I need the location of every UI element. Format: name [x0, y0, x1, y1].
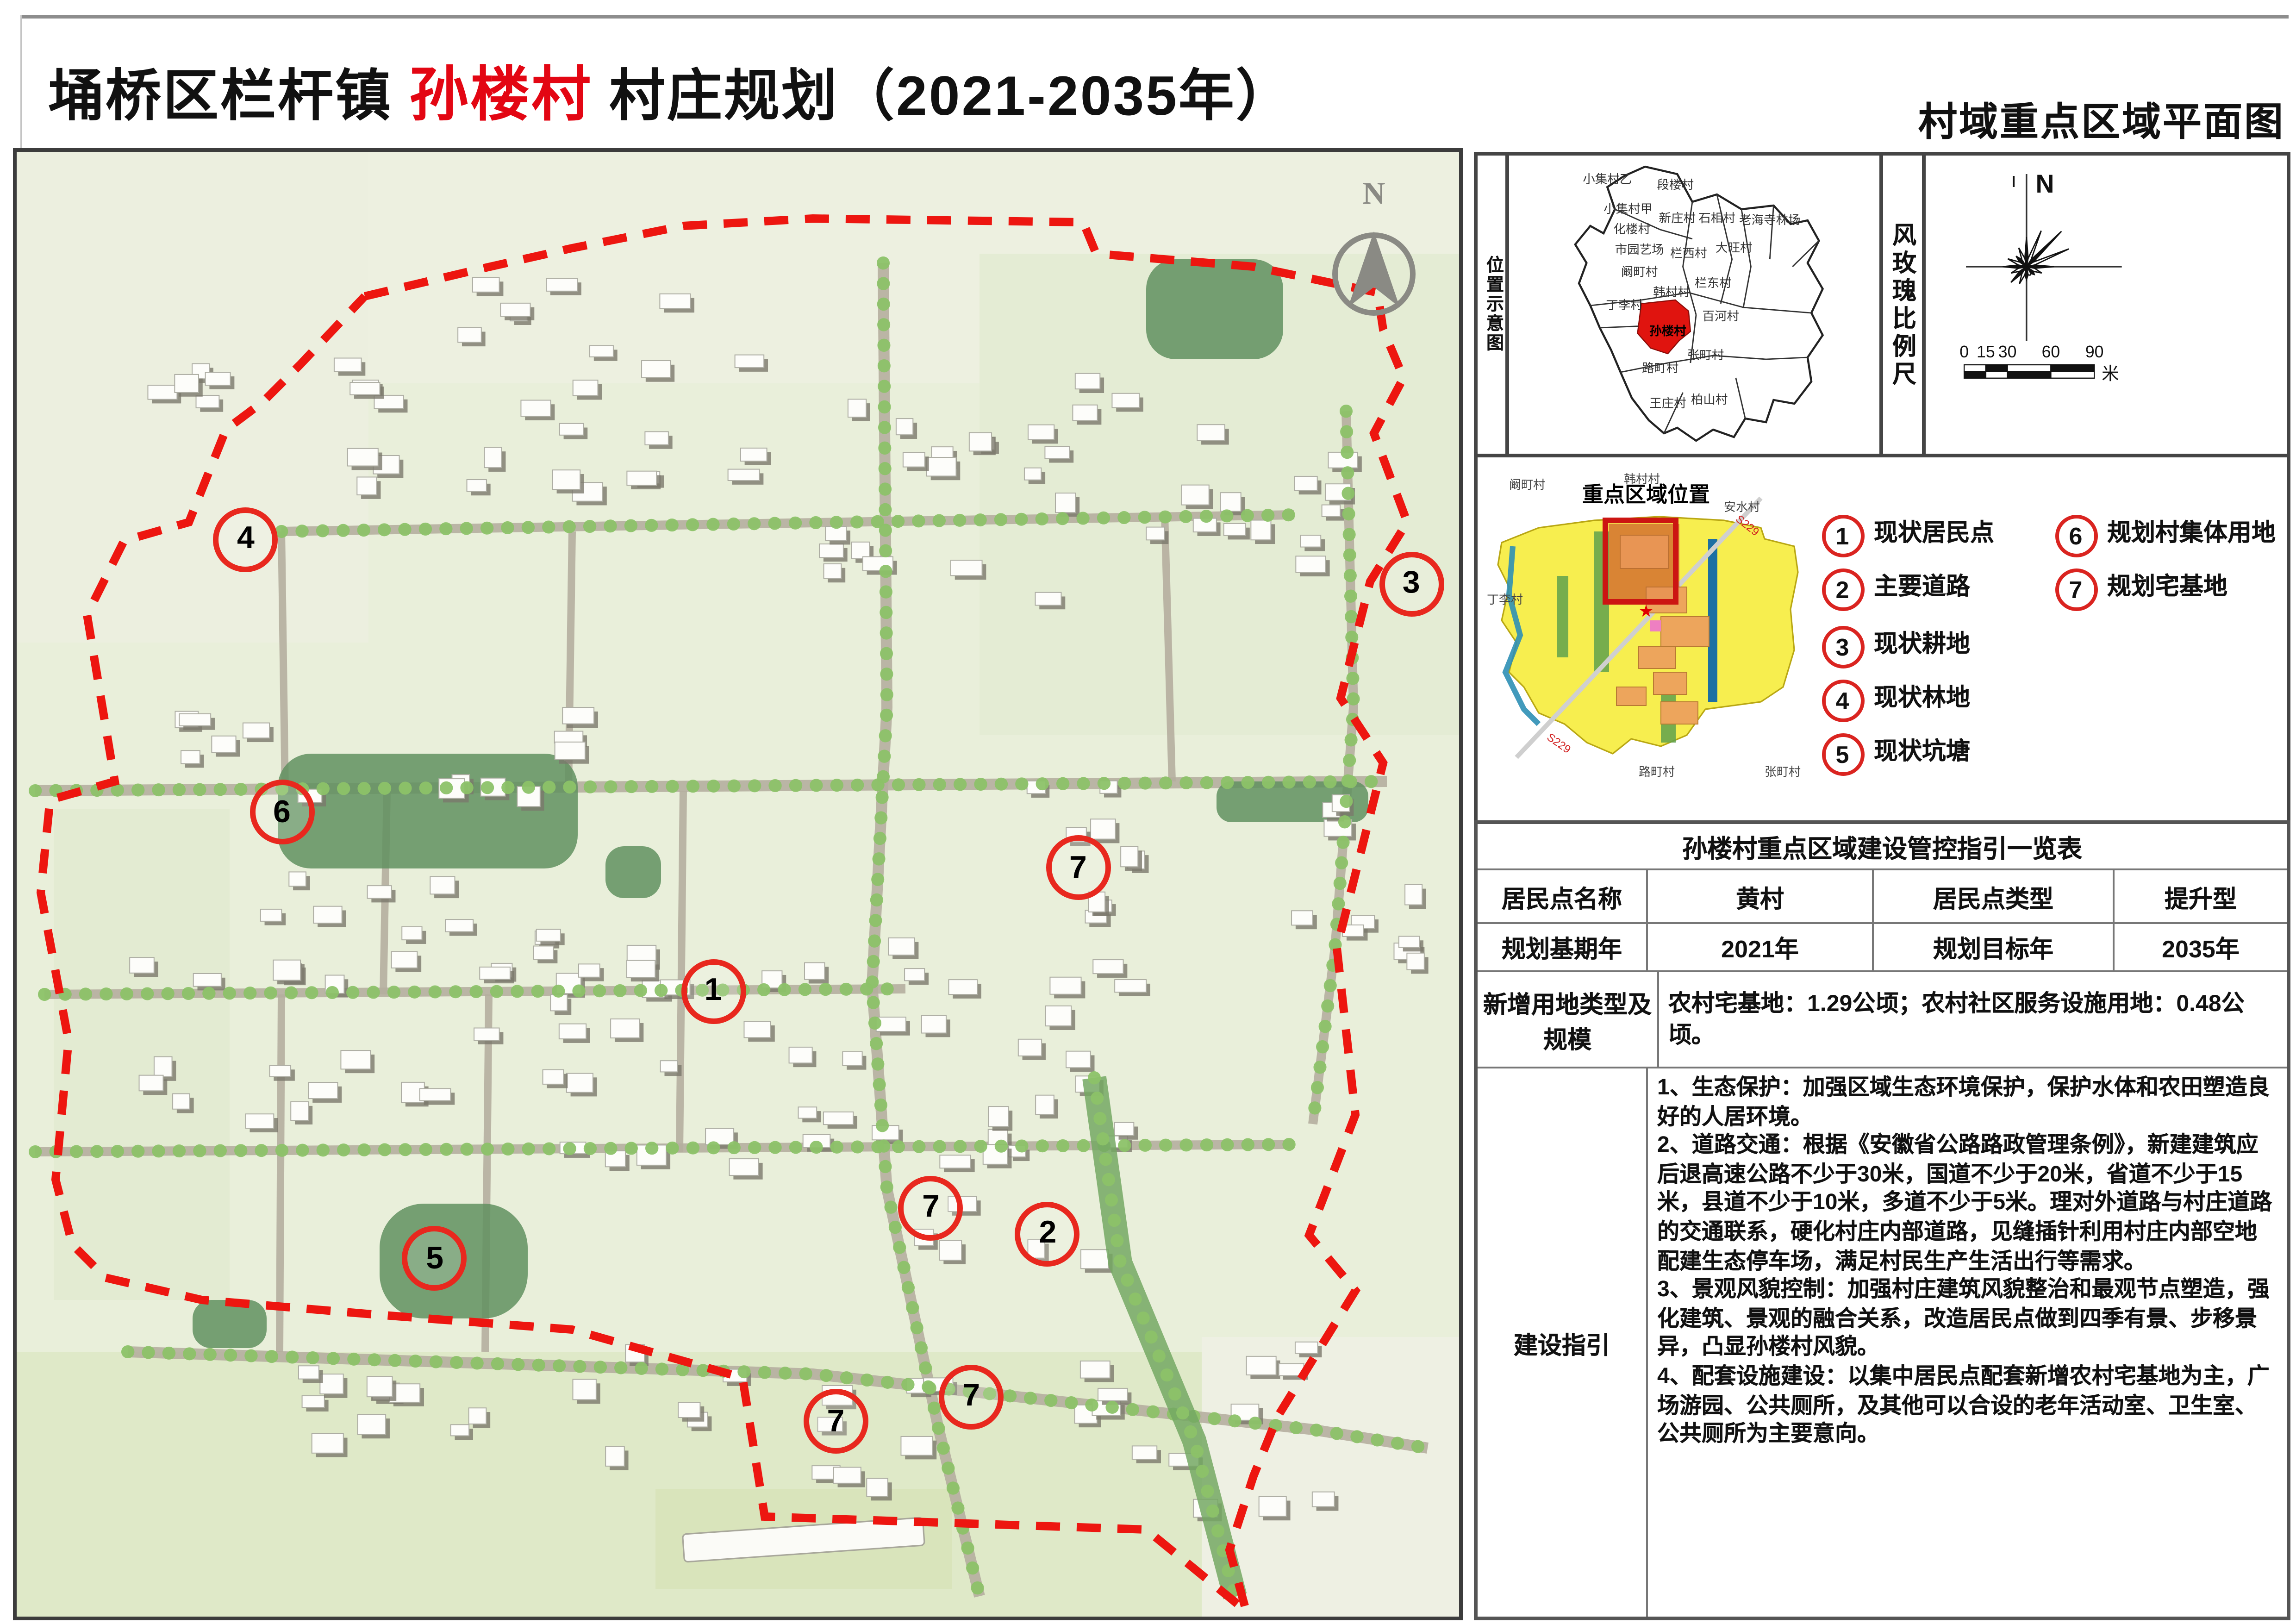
svg-text:米: 米 — [2102, 364, 2119, 384]
windrose-scale-box: N015306090米 — [1926, 152, 2290, 457]
map-marker-7: 7 — [1046, 836, 1111, 900]
legend-label: 现状居民点 — [1874, 514, 1994, 549]
location-village-label: 丁李村 — [1606, 298, 1643, 312]
location-village-label: 柏山村 — [1691, 393, 1728, 406]
legend-label: 现状耕地 — [1874, 625, 1970, 660]
map-marker-2: 2 — [1015, 1202, 1080, 1267]
location-village-label: 张町村 — [1687, 348, 1724, 362]
guideline-paragraph: 4、配套设施建设：以集中居民点配套新增农村宅基地为主，广场游园、公共厕所，及其他… — [1657, 1363, 2277, 1449]
village-planning-map: N 4367172577 — [13, 148, 1463, 1620]
location-map: 小集村乙段楼村小集村甲新庄村石相村老海寺林场化楼村市园艺场栏西村大旺村阚町村韩村… — [1509, 152, 1883, 457]
location-village-label: 大旺村 — [1716, 241, 1753, 255]
cell-base-year-label: 规划基期年 — [1478, 924, 1646, 970]
location-map-graphic: 小集村乙段楼村小集村甲新庄村石相村老海寺林场化楼村市园艺场栏西村大旺村阚町村韩村… — [1509, 156, 1879, 454]
info-column: 位置示意图 小集村乙段楼村小集村甲新庄村石相村老海寺林场化楼村市园艺场栏西村大旺… — [1474, 152, 2290, 1613]
windrose-panel-label: 风玫瑰比例尺 — [1883, 152, 1926, 457]
legend-label: 现状林地 — [1874, 679, 1970, 714]
route-label: S229 — [1545, 731, 1573, 756]
location-village-label: 小集村乙 — [1583, 172, 1632, 186]
title-suffix: 村庄规划（2021-2035年） — [609, 67, 1293, 128]
north-arrow: N — [1318, 174, 1429, 344]
table-row: 新增用地类型及规模 农村宅基地：1.29公顷；农村社区服务设施用地：0.48公顷… — [1478, 972, 2287, 1068]
location-village-label: 百河村 — [1702, 309, 1739, 323]
windrose-graphic: N015306090米 — [1926, 156, 2287, 454]
north-arrow-icon: N — [1318, 174, 1429, 344]
location-windrose-row: 位置示意图 小集村乙段楼村小集村甲新庄村石相村老海寺林场化楼村市园艺场栏西村大旺… — [1474, 152, 2290, 457]
map-marker-6: 6 — [250, 780, 314, 844]
title-village-name: 孙楼村 — [409, 61, 593, 128]
location-village-label: 栏西村 — [1670, 246, 1707, 260]
legend-label: 现状坑塘 — [1874, 732, 1970, 768]
key-area-mini-map: ★重点区域位置S229S229阚町村韩村村安水村丁李村路町村张町村 — [1483, 465, 1809, 813]
location-village-label: 段楼村 — [1657, 178, 1694, 192]
cell-resident-name-value: 黄村 — [1646, 870, 1872, 922]
cell-new-land-value: 农村宅基地：1.29公顷；农村社区服务设施用地：0.48公顷。 — [1657, 972, 2287, 1067]
map-marker-4: 4 — [213, 507, 278, 572]
legend-number-3: 3 — [1821, 625, 1864, 668]
map-marker-7: 7 — [939, 1364, 1004, 1429]
scale-tick: 0 — [1959, 343, 1969, 361]
cell-guideline-label: 建设指引 — [1478, 1068, 1646, 1617]
location-village-label: 栏东村 — [1695, 276, 1732, 290]
location-village-label: 路町村 — [1642, 361, 1679, 375]
legend-panel: ★重点区域位置S229S229阚町村韩村村安水村丁李村路町村张町村 1现状居民点… — [1474, 454, 2290, 831]
location-village-label: 老海寺林场 — [1739, 213, 1801, 227]
location-village-label: 韩村村 — [1653, 285, 1690, 299]
mini-map-village-label: 丁李村 — [1487, 593, 1523, 606]
table-title: 孙楼村重点区域建设管控指引一览表 — [1478, 824, 2287, 870]
scale-tick: 60 — [2042, 343, 2060, 361]
location-village-label: 新庄村 — [1659, 211, 1696, 225]
mini-map-village-label: 安水村 — [1724, 500, 1760, 514]
location-panel-label: 位置示意图 — [1474, 152, 1509, 457]
guideline-paragraph: 3、景观风貌控制：加强村庄建筑风貌整治和最观节点塑造，强化建筑、景观的融合关系，… — [1657, 1276, 2277, 1363]
cell-new-land-label: 新增用地类型及规模 — [1478, 972, 1657, 1067]
legend-number-4: 4 — [1821, 679, 1864, 721]
location-village-label: 化楼村 — [1614, 222, 1651, 236]
guideline-paragraph: 1、生态保护：加强区域生态环境保护，保护水体和农田塑造良好的人居环境。 — [1657, 1074, 2277, 1132]
location-village-label: 阚町村 — [1621, 265, 1658, 279]
location-village-label: 孙楼村 — [1649, 324, 1686, 338]
scale-tick: 30 — [1998, 343, 2017, 361]
key-area-mini-map-graphic: ★重点区域位置S229S229阚町村韩村村安水村丁李村路町村张町村 — [1483, 465, 1809, 813]
cell-guideline-value: 1、生态保护：加强区域生态环境保护，保护水体和农田塑造良好的人居环境。2、道路交… — [1646, 1068, 2287, 1617]
scale-tick: 15 — [1977, 343, 1995, 361]
legend-label: 主要道路 — [1874, 568, 1970, 603]
drawing-title: 村域重点区域平面图 — [1918, 93, 2285, 148]
mini-map-village-label: 韩村村 — [1624, 472, 1660, 486]
cell-target-year-value: 2035年 — [2113, 924, 2287, 970]
north-letter: N — [1362, 175, 1385, 211]
legend-number-5: 5 — [1821, 732, 1864, 775]
location-village-label: 石相村 — [1698, 211, 1735, 225]
mini-map-village-label: 张町村 — [1765, 765, 1801, 779]
table-row: 规划基期年 2021年 规划目标年 2035年 — [1478, 924, 2287, 972]
legend-number-2: 2 — [1821, 568, 1864, 610]
cell-target-year-label: 规划目标年 — [1872, 924, 2113, 970]
cell-resident-type-label: 居民点类型 — [1872, 870, 2113, 922]
legend-label: 规划宅基地 — [2107, 568, 2227, 603]
plan-sheet: 埇桥区栏杆镇孙楼村村庄规划（2021-2035年） 村域重点区域平面图 N 43… — [0, 0, 2296, 1624]
svg-text:N: N — [2036, 169, 2054, 198]
page-title: 埇桥区栏杆镇孙楼村村庄规划（2021-2035年） — [48, 48, 1293, 133]
mini-map-village-label: 阚町村 — [1509, 478, 1545, 492]
mini-map-village-label: 路町村 — [1639, 765, 1675, 779]
sheet-top-rule — [22, 15, 2289, 19]
planning-map-graphic — [17, 152, 1459, 1617]
title-prefix: 埇桥区栏杆镇 — [48, 67, 393, 128]
page: 埇桥区栏杆镇孙楼村村庄规划（2021-2035年） 村域重点区域平面图 N 43… — [0, 0, 2296, 1624]
legend-number-7: 7 — [2054, 568, 2097, 610]
guideline-paragraph: 2、道路交通：根据《安徽省公路路政管理条例》，新建建筑应后退高速公路不少于30米… — [1657, 1132, 2277, 1276]
cell-base-year-value: 2021年 — [1646, 924, 1872, 970]
map-marker-7: 7 — [803, 1389, 868, 1454]
legend-number-6: 6 — [2054, 514, 2097, 556]
legend-number-1: 1 — [1821, 514, 1864, 556]
table-row: 建设指引 1、生态保护：加强区域生态环境保护，保护水体和农田塑造良好的人居环境。… — [1478, 1068, 2287, 1617]
scale-tick: 90 — [2085, 343, 2104, 361]
location-village-label: 市园艺场 — [1615, 243, 1664, 256]
location-village-label: 小集村甲 — [1603, 202, 1653, 216]
cell-resident-name-label: 居民点名称 — [1478, 870, 1646, 922]
legend-label: 规划村集体用地 — [2107, 514, 2276, 549]
control-table: 孙楼村重点区域建设管控指引一览表 居民点名称 黄村 居民点类型 提升型 规划基期… — [1474, 820, 2290, 1620]
location-village-label: 王庄村 — [1649, 396, 1686, 410]
cell-resident-type-value: 提升型 — [2113, 870, 2287, 922]
table-row: 居民点名称 黄村 居民点类型 提升型 — [1478, 870, 2287, 924]
map-marker-3: 3 — [1379, 551, 1444, 616]
svg-text:★: ★ — [1639, 601, 1653, 620]
